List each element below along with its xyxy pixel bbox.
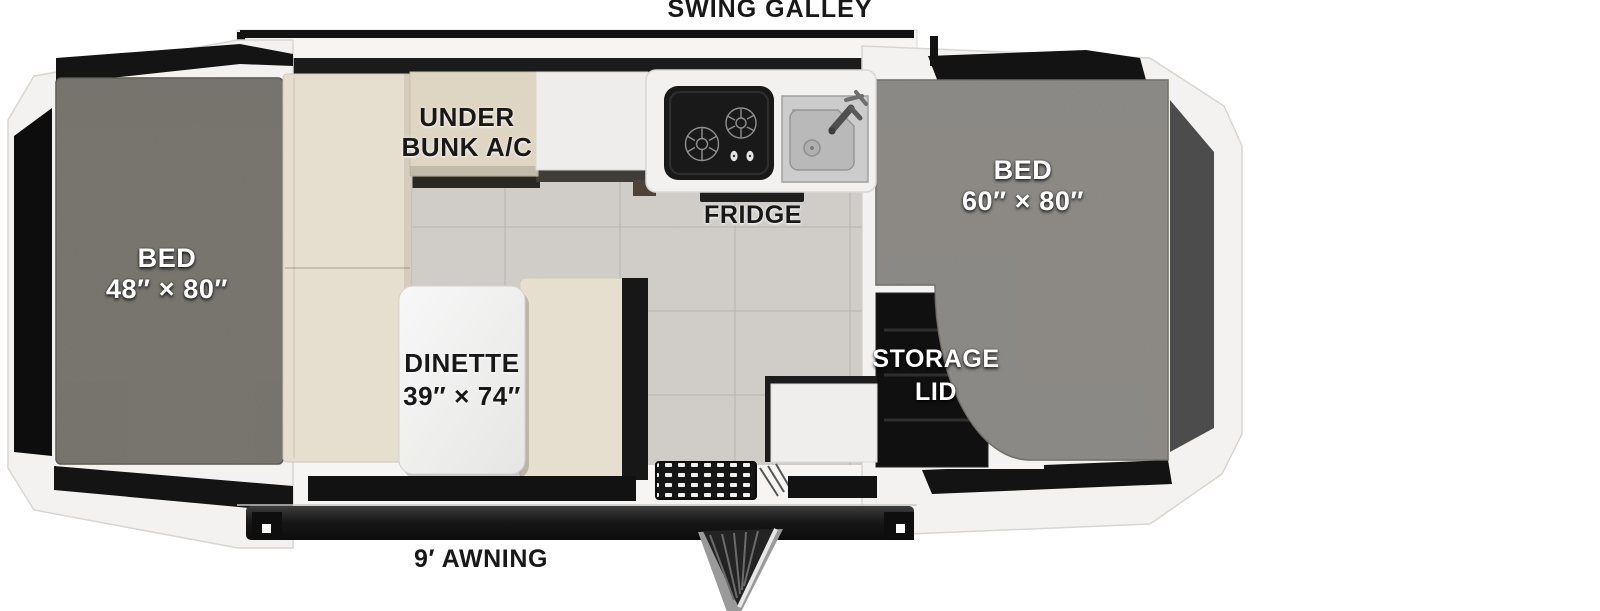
tent-end-panel-left bbox=[14, 108, 52, 456]
bed-left-size: 48″ × 80″ bbox=[106, 276, 228, 303]
camper-floorplan: SWING GALLEY UNDER BUNK A/C FRIDGE BED 4… bbox=[0, 0, 1600, 611]
bed-left-label: BED bbox=[138, 245, 197, 272]
floorplan-drawing bbox=[0, 0, 1600, 611]
bed-right-size: 60″ × 80″ bbox=[962, 188, 1084, 215]
tent-end-panel-right bbox=[1170, 100, 1214, 452]
storage-lid-label-line2: LID bbox=[915, 380, 957, 405]
awning-rail-icon bbox=[246, 506, 914, 540]
two-burner-stove-icon bbox=[664, 86, 774, 180]
window-strip-right bbox=[788, 476, 877, 498]
roof-rail bbox=[240, 30, 914, 38]
counter-segment bbox=[536, 72, 648, 170]
sink-faucet-icon bbox=[782, 92, 868, 182]
fold-down-door-step-icon bbox=[698, 529, 783, 611]
dinette-size: 39″ × 74″ bbox=[403, 383, 521, 409]
under-bunk-ac-label-line1: UNDER bbox=[419, 104, 514, 130]
bed-right-pod bbox=[862, 46, 1242, 536]
under-bunk-ac-label-line2: BUNK A/C bbox=[402, 134, 533, 160]
window-strip-left bbox=[308, 476, 636, 501]
bed-right-label: BED bbox=[994, 157, 1053, 184]
dinette-label: DINETTE bbox=[404, 350, 519, 376]
awning-label: 9′ AWNING bbox=[414, 547, 548, 572]
storage-lid-label-line1: STORAGE bbox=[872, 347, 999, 372]
dinette-bench bbox=[520, 278, 648, 480]
swing-galley-label: SWING GALLEY bbox=[667, 0, 872, 22]
door-cabinet bbox=[765, 376, 877, 462]
galley-counter bbox=[646, 70, 876, 192]
sofa-bench bbox=[283, 74, 412, 462]
fridge-label: FRIDGE bbox=[704, 203, 802, 228]
